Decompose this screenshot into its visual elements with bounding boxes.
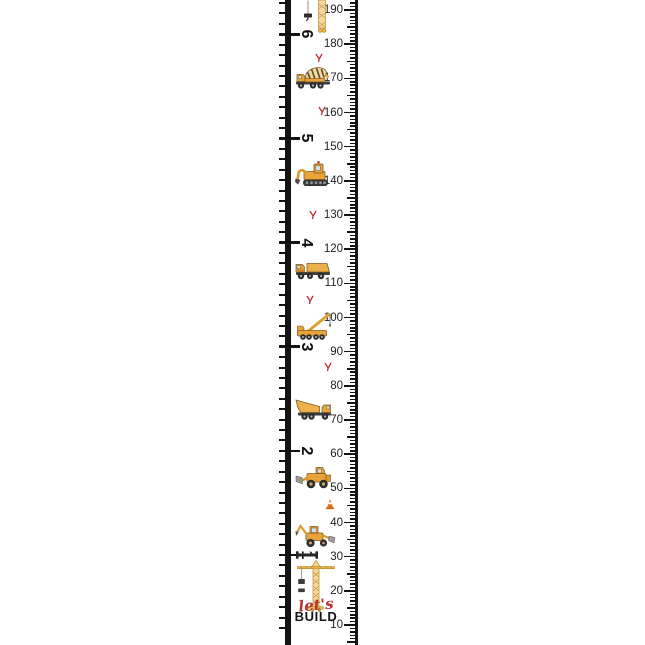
cm-tick [344,351,355,353]
cm-tick [347,26,355,28]
feet-label: 2 [297,446,315,455]
left-minor-tick [279,106,285,108]
cm-tick [350,371,356,373]
cm-tick [350,122,356,124]
left-minor-tick [279,481,285,483]
crane-mast-top-icon [317,0,327,34]
cm-tick [350,218,356,220]
cm-tick [350,604,356,606]
cm-tick [350,597,356,599]
cm-tick [350,102,356,104]
cm-tick [350,330,356,332]
left-minor-tick [279,85,285,87]
feet-label: 3 [297,342,315,351]
cm-tick [350,392,356,394]
cm-tick [350,337,356,339]
feet-label: 5 [297,134,315,143]
cm-tick [350,614,356,616]
cm-tick [350,412,356,414]
cm-tick [350,125,356,127]
cm-tick [350,6,356,8]
left-minor-tick [279,367,285,369]
left-minor-tick [279,148,285,150]
cm-tick [350,33,356,35]
left-minor-tick [279,169,285,171]
cm-tick [350,341,356,343]
cm-tick [350,423,356,425]
left-minor-tick [279,606,285,608]
cm-tick [350,88,356,90]
left-minor-tick [279,54,285,56]
cm-tick [350,501,356,503]
cm-tick [350,71,356,73]
cm-tick [350,201,356,203]
excavator-icon [294,157,332,188]
cm-tick [344,624,355,626]
left-minor-tick [279,627,285,629]
cm-tick [350,477,356,479]
left-minor-tick [279,564,285,566]
cm-tick [350,563,356,565]
cm-label: 180 [308,37,343,51]
cm-tick [350,474,356,476]
feet-label: 4 [297,238,315,247]
left-minor-tick [279,439,285,441]
cm-tick [350,13,356,15]
cm-tick [344,248,355,250]
cm-tick [350,67,356,69]
cm-tick [350,416,356,418]
cm-tick [344,283,355,285]
cm-tick [350,238,356,240]
cm-tick [344,146,355,148]
cm-tick [350,440,356,442]
cm-tick [350,313,356,315]
spirit-level-icon [296,550,318,559]
cm-tick [350,433,356,435]
left-minor-tick [279,44,285,46]
feet-label: 6 [297,30,315,39]
left-minor-tick [279,179,285,181]
cm-tick [350,40,356,42]
cm-tick [350,115,356,117]
left-minor-tick [279,262,285,264]
cm-tick [350,365,356,367]
growth-chart-ruler-image: 1901801701601501401301201101009080706050… [0,0,645,645]
cm-tick [347,334,355,336]
left-minor-tick [279,377,285,379]
cm-tick [350,570,356,572]
left-minor-tick [279,575,285,577]
cm-tick [350,447,356,449]
cm-tick [350,580,356,582]
cm-tick [350,153,356,155]
cm-tick [350,583,356,585]
left-minor-tick [279,408,285,410]
wheel-loader-icon [295,463,335,490]
cm-tick [350,160,356,162]
left-minor-tick [279,221,285,223]
cm-tick [350,542,356,544]
left-minor-tick [279,325,285,327]
cm-tick [344,214,355,216]
cm-tick [350,559,356,561]
cm-tick [350,187,356,189]
cm-tick [347,368,355,370]
footprint-mark-icon [318,106,326,115]
cm-tick [350,512,356,514]
cm-tick [350,320,356,322]
cm-tick [350,272,356,274]
cm-tick [350,269,356,271]
cm-tick [350,535,356,537]
left-minor-tick [279,429,285,431]
left-minor-tick [279,294,285,296]
cm-tick [350,617,356,619]
left-minor-tick [279,585,285,587]
left-minor-tick [279,190,285,192]
cm-tick [350,491,356,493]
cm-tick [350,296,356,298]
left-minor-tick [279,127,285,129]
cm-tick [350,443,356,445]
dump-truck-icon [293,255,333,280]
cm-tick [350,173,356,175]
cm-tick [350,532,356,534]
cm-tick [347,402,355,404]
left-minor-tick [279,356,285,358]
left-minor-tick [279,315,285,317]
cm-tick [350,460,356,462]
cm-tick [350,255,356,257]
cm-tick [350,108,356,110]
left-minor-tick [279,12,285,14]
cm-tick [350,30,356,32]
cm-tick [350,91,356,93]
cm-tick [350,74,356,76]
cm-tick [350,177,356,179]
cm-tick [350,276,356,278]
left-minor-tick [279,544,285,546]
cm-tick [350,23,356,25]
cm-tick [350,375,356,377]
cm-tick [350,546,356,548]
cm-tick [347,505,355,507]
cm-tick [350,235,356,237]
cm-tick [350,324,356,326]
left-minor-tick [279,158,285,160]
cm-label: 80 [308,379,343,393]
cm-tick [347,436,355,438]
cm-tick [347,641,355,643]
cm-tick [350,628,356,630]
mobile-crane-icon [295,307,337,342]
left-minor-tick [279,252,285,254]
cm-tick [350,525,356,527]
left-minor-tick [279,210,285,212]
cm-tick [350,293,356,295]
cm-tick [350,149,356,151]
cm-tick [350,389,356,391]
cm-tick [350,307,356,309]
ruler-right-edge-line [355,0,358,645]
cm-tick [344,590,355,592]
left-minor-tick [279,398,285,400]
cm-tick [350,225,356,227]
cm-tick [344,9,355,11]
left-minor-tick [279,596,285,598]
cm-tick [350,635,356,637]
cm-tick [350,409,356,411]
left-minor-tick [279,117,285,119]
cm-tick [344,180,355,182]
cm-tick [344,488,355,490]
cm-tick [347,129,355,131]
cm-tick [347,300,355,302]
cm-tick [350,221,356,223]
cm-tick [350,457,356,459]
cm-tick [350,47,356,49]
cm-tick [347,539,355,541]
cm-tick [350,64,356,66]
cm-tick [344,112,355,114]
left-minor-tick [279,419,285,421]
cm-tick [347,471,355,473]
footer-script-text: let's [298,594,335,615]
cm-tick [350,84,356,86]
cm-tick [347,197,355,199]
cm-tick [350,57,356,59]
cm-tick [350,143,356,145]
footprint-mark-icon [315,53,323,62]
cm-tick [350,289,356,291]
cm-tick [347,573,355,575]
hanging-hook-icon [303,0,313,23]
cm-tick [350,252,356,254]
cm-tick [344,522,355,524]
backhoe-loader-icon [294,520,336,549]
left-minor-tick [279,492,285,494]
left-minor-tick [279,96,285,98]
cm-tick [350,378,356,380]
cm-tick [347,266,355,268]
cm-tick [350,529,356,531]
cm-tick [344,453,355,455]
cm-tick [344,556,355,558]
footprint-mark-icon [306,296,314,305]
cement-mixer-truck-icon [294,63,334,90]
cm-tick [350,395,356,397]
cm-tick [350,638,356,640]
cm-tick [350,286,356,288]
traffic-cone-icon [326,498,335,509]
cm-tick [350,553,356,555]
cm-tick [350,576,356,578]
cm-tick [350,594,356,596]
cm-tick [350,54,356,56]
left-minor-tick [279,23,285,25]
cm-tick [350,211,356,213]
cm-tick [350,98,356,100]
cm-tick [350,494,356,496]
cm-tick [350,105,356,107]
cm-tick [350,631,356,633]
left-minor-tick [279,460,285,462]
cm-tick [350,20,356,22]
left-minor-tick [279,502,285,504]
left-minor-tick [279,533,285,535]
footprint-mark-icon [309,211,317,220]
cm-tick [344,43,355,45]
cm-tick [347,231,355,233]
cm-tick [350,358,356,360]
cm-tick [350,242,356,244]
left-minor-tick [279,65,285,67]
left-minor-tick [279,75,285,77]
cm-tick [350,467,356,469]
left-minor-tick [279,512,285,514]
cm-tick [350,16,356,18]
left-minor-tick [279,283,285,285]
cm-tick [347,95,355,97]
cm-tick [350,382,356,384]
left-minor-tick [279,200,285,202]
cm-tick [350,194,356,196]
cm-tick [350,170,356,172]
cm-tick [350,344,356,346]
cm-tick [350,207,356,209]
left-minor-tick [279,471,285,473]
cm-tick [350,2,356,4]
cm-tick [347,163,355,165]
cm-tick [344,385,355,387]
cm-tick [350,549,356,551]
cm-tick [350,515,356,517]
cm-tick [350,426,356,428]
cm-tick [350,204,356,206]
cm-tick [344,317,355,319]
cm-tick [350,119,356,121]
left-minor-tick [279,304,285,306]
cm-tick [350,484,356,486]
cm-tick [350,406,356,408]
cm-tick [350,327,356,329]
cm-tick [350,464,356,466]
left-minor-tick [279,335,285,337]
cm-tick [350,259,356,261]
cm-tick [350,430,356,432]
left-minor-tick [279,231,285,233]
cm-tick [350,228,356,230]
left-minor-tick [279,273,285,275]
ruler-left-edge-bar [285,0,291,645]
left-minor-tick [279,617,285,619]
cm-tick [350,81,356,83]
left-minor-tick [279,387,285,389]
cm-tick [350,481,356,483]
cm-tick [350,450,356,452]
cm-tick [350,518,356,520]
cm-tick [350,361,356,363]
cm-tick [350,136,356,138]
cm-tick [347,61,355,63]
cm-tick [350,354,356,356]
cm-tick [347,607,355,609]
cm-tick [350,262,356,264]
cm-tick [350,566,356,568]
cm-tick [344,78,355,80]
cm-tick [350,600,356,602]
cm-tick [350,139,356,141]
cm-tick [350,156,356,158]
cm-tick [350,348,356,350]
cm-tick [350,132,356,134]
cm-tick [350,166,356,168]
cm-tick [350,184,356,186]
cm-tick [350,399,356,401]
cm-tick [350,245,356,247]
cm-tick [350,621,356,623]
cm-tick [344,419,355,421]
cm-tick [350,50,356,52]
cm-tick [350,279,356,281]
cm-tick [350,303,356,305]
footprint-mark-icon [324,363,332,372]
cm-tick [350,498,356,500]
cm-tick [350,611,356,613]
left-minor-tick [279,2,285,4]
tipper-truck-icon [294,395,334,421]
cm-tick [350,508,356,510]
cm-tick [350,587,356,589]
cm-tick [350,37,356,39]
cm-tick [350,310,356,312]
left-minor-tick [279,523,285,525]
cm-tick [350,190,356,192]
